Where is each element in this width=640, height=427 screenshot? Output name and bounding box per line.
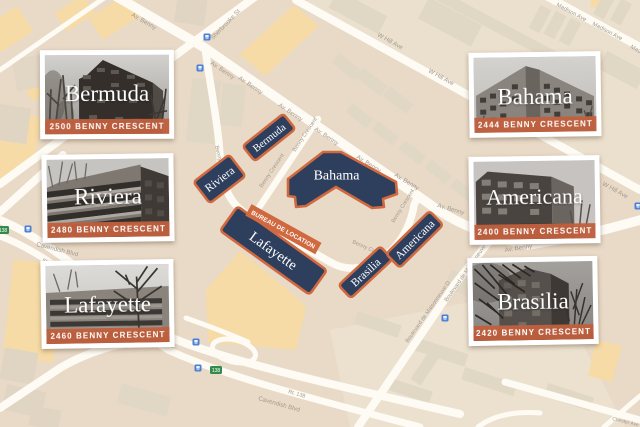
svg-text:138: 138 xyxy=(212,368,221,374)
svg-text:138: 138 xyxy=(0,228,7,234)
svg-text:Bahama: Bahama xyxy=(314,169,361,184)
